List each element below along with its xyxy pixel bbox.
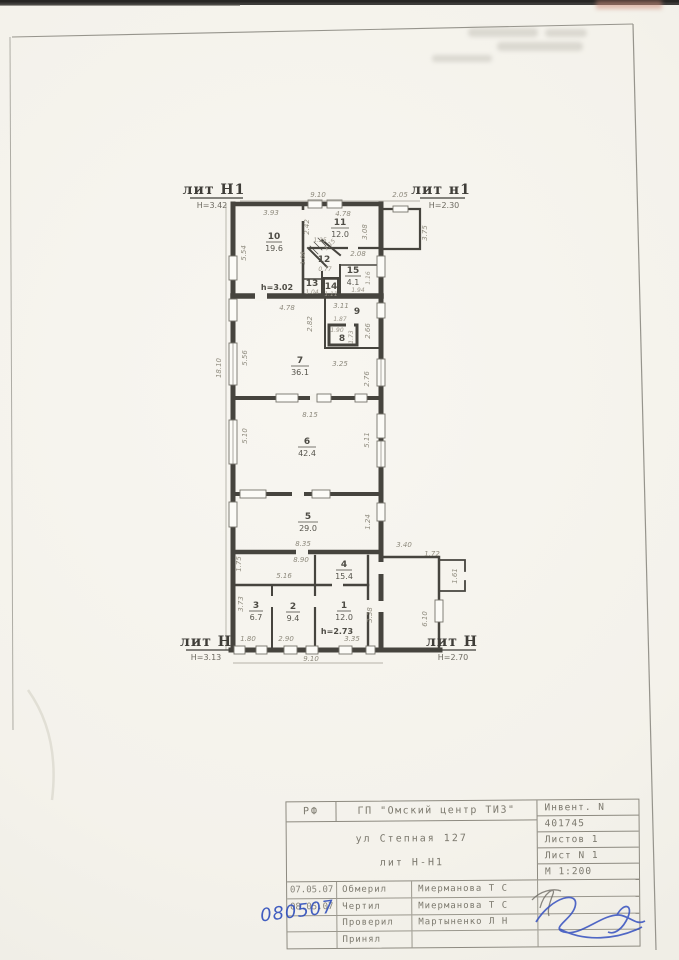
dim-label: 2.90 bbox=[278, 635, 294, 643]
room-11-number: 11 bbox=[334, 218, 347, 228]
dim-label: 3.35 bbox=[344, 635, 360, 643]
room-2-area: 9.4 bbox=[287, 614, 300, 623]
dim-label: 1.04 bbox=[305, 289, 319, 296]
dimension-labels: 9.10 2.05 3.93 2.42 4.78 5.54 1.25 2.08 … bbox=[215, 191, 459, 663]
room-5-area: 29.0 bbox=[299, 524, 317, 533]
dim-label: 3.38 bbox=[366, 607, 374, 623]
room-labels: 10 19.6 h=3.02 11 12.0 12 13 14 15 4.1 9… bbox=[249, 218, 361, 636]
row-name: Миерманова Т С bbox=[412, 880, 538, 897]
row-date bbox=[287, 932, 337, 948]
dim-label: 1.25 bbox=[313, 237, 327, 244]
dim-label: 0.77 bbox=[318, 266, 332, 273]
sheets-total: Листов 1 bbox=[538, 832, 639, 849]
dim-label: 3.75 bbox=[421, 225, 429, 241]
room-4-number: 4 bbox=[341, 560, 347, 570]
dim-label: 1.80 bbox=[240, 635, 256, 643]
dim-label: 1.94 bbox=[351, 287, 365, 294]
dim-label: 1.72 bbox=[424, 550, 440, 558]
room-1-area: 12.0 bbox=[335, 613, 353, 622]
dim-label: 1.16 bbox=[365, 271, 372, 285]
lit-height-top-left: Н=3.42 bbox=[197, 201, 228, 210]
title-block-country: РФ bbox=[286, 802, 336, 821]
row-name: Миерманова Т С bbox=[412, 897, 538, 914]
dim-label: 8.15 bbox=[302, 411, 318, 419]
dim-label: 1.08 bbox=[300, 251, 307, 265]
room-8-number: 8 bbox=[339, 334, 345, 344]
dim-label: 3.93 bbox=[263, 209, 279, 217]
lit-height-bottom-right: Н=2.70 bbox=[438, 653, 469, 662]
dim-label: 9.10 bbox=[303, 655, 319, 663]
dim-label: 1.11 bbox=[324, 291, 337, 298]
row-role: Чертил bbox=[337, 898, 412, 914]
title-block-liter: лит Н-Н1 bbox=[380, 857, 444, 869]
inventory-number: 401745 bbox=[538, 816, 639, 833]
dim-label: 1.73 bbox=[348, 330, 355, 344]
row-role: Проверил bbox=[337, 915, 412, 931]
room-7-area: 36.1 bbox=[291, 368, 309, 377]
dim-label: 5.10 bbox=[241, 428, 249, 444]
room-10-area: 19.6 bbox=[265, 244, 283, 253]
row-role: Принял bbox=[337, 932, 412, 948]
dim-label: 5.16 bbox=[276, 572, 292, 580]
pencil-signature-icon bbox=[532, 890, 561, 916]
scanned-page: лит Н1 Н=3.42 лит н1 Н=2.30 лит Н Н=3.13… bbox=[0, 0, 679, 960]
lit-label-bottom-left: лит Н bbox=[180, 634, 232, 650]
dim-label: 3.08 bbox=[361, 224, 369, 240]
dim-label: 1.75 bbox=[235, 556, 243, 572]
dim-label: 4.78 bbox=[279, 304, 295, 312]
dim-label: 9.10 bbox=[310, 191, 326, 199]
page-curl-shadow bbox=[28, 690, 54, 800]
dim-label: 5.11 bbox=[363, 432, 371, 448]
room-7-number: 7 bbox=[297, 356, 303, 366]
lit-height-bottom-left: Н=3.13 bbox=[191, 653, 222, 662]
lit-label-top-left: лит Н1 bbox=[183, 182, 246, 198]
room-5-number: 5 bbox=[305, 512, 311, 522]
dim-label: 4.78 bbox=[335, 210, 351, 218]
room-3-number: 3 bbox=[253, 601, 259, 611]
dim-label: 8.35 bbox=[295, 540, 311, 548]
dim-label: 2.05 bbox=[392, 191, 408, 199]
row-name bbox=[412, 931, 538, 948]
row-name: Мартыненко Л Н bbox=[412, 914, 538, 931]
room-10-number: 10 bbox=[268, 232, 281, 242]
room-2-number: 2 bbox=[290, 602, 296, 612]
room-15-number: 15 bbox=[347, 266, 360, 276]
room-1-number: 1 bbox=[341, 601, 347, 611]
dim-label: 3.25 bbox=[332, 360, 348, 368]
lit-label-top-right: лит н1 bbox=[411, 182, 471, 198]
room-3-area: 6.7 bbox=[250, 613, 263, 622]
row-date: 07.05.07 bbox=[287, 882, 337, 898]
title-block-header: РФ ГП "Омский центр ТИЗ" ул Степная 127 … bbox=[286, 800, 639, 883]
blue-signature-icon bbox=[536, 897, 645, 937]
bleedthrough-smudges bbox=[432, 28, 587, 62]
dim-label: 5.54 bbox=[240, 245, 248, 261]
inventory-label: Инвент. N bbox=[537, 800, 638, 817]
dim-label: 2.42 bbox=[303, 219, 311, 235]
dim-label: 8.90 bbox=[293, 556, 309, 564]
lit-label-bottom-right: лит Н bbox=[426, 634, 478, 650]
dim-label: 18.10 bbox=[215, 357, 223, 378]
dim-label: 1.90 bbox=[330, 327, 344, 334]
ceiling-height-upper: h=3.02 bbox=[261, 283, 293, 292]
dim-label: 1.24 bbox=[364, 514, 372, 530]
room-6-number: 6 bbox=[304, 437, 310, 447]
signatures-overlay bbox=[522, 874, 672, 952]
dim-label: 3.73 bbox=[237, 596, 245, 612]
sheet-number: Лист N 1 bbox=[538, 848, 639, 865]
dim-label: 2.76 bbox=[363, 371, 371, 387]
row-role: Обмерил bbox=[337, 881, 412, 897]
dim-label: 3.11 bbox=[333, 302, 349, 310]
room-15-area: 4.1 bbox=[347, 278, 360, 287]
dim-label: 1.61 bbox=[451, 568, 459, 584]
room-11-area: 12.0 bbox=[331, 230, 349, 239]
scan-top-edge bbox=[0, 0, 679, 9]
dim-label: 3.40 bbox=[396, 541, 412, 549]
dim-label: 2.82 bbox=[306, 316, 314, 332]
dim-label: 5.56 bbox=[241, 350, 249, 366]
room-4-area: 15.4 bbox=[335, 572, 353, 581]
dim-label: 1.87 bbox=[333, 316, 347, 323]
dim-label: 6.10 bbox=[421, 611, 429, 627]
dim-label: 2.66 bbox=[364, 323, 372, 339]
room-13-number: 13 bbox=[306, 279, 319, 289]
room-12-number: 12 bbox=[318, 255, 331, 265]
dim-label: 2.08 bbox=[350, 250, 366, 258]
room-6-area: 42.4 bbox=[298, 449, 316, 458]
lit-height-top-right: Н=2.30 bbox=[429, 201, 460, 210]
title-block-address: ул Степная 127 bbox=[356, 833, 468, 845]
room-9-number: 9 bbox=[354, 307, 360, 317]
title-block-organization: ГП "Омский центр ТИЗ" bbox=[336, 800, 536, 821]
